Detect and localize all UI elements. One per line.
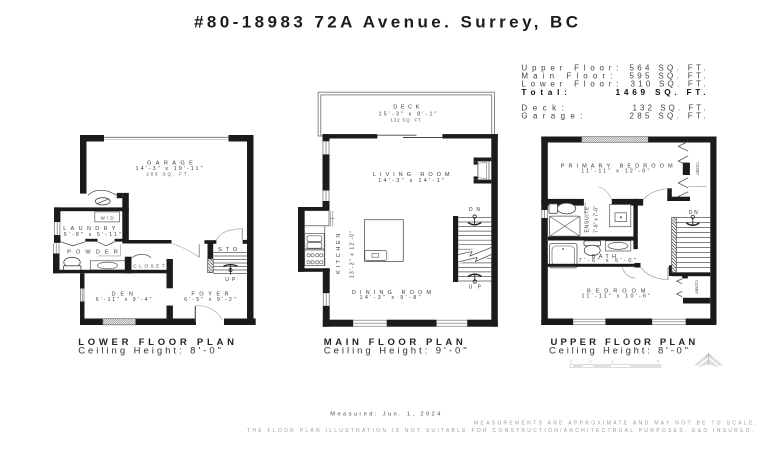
svg-text:13'-2" x 12'-0": 13'-2" x 12'-0" (350, 231, 356, 278)
svg-text:2: 2 (589, 359, 592, 364)
svg-text:11'-11" x 10'-6": 11'-11" x 10'-6" (582, 294, 651, 300)
svg-text:132 SQ. FT.: 132 SQ. FT. (390, 118, 422, 123)
svg-text:CLOSET: CLOSET (695, 280, 700, 295)
svg-text:MEASUREMENTS ARE APPROXIMATE A: MEASUREMENTS ARE APPROXIMATE AND MAY NOT… (474, 421, 756, 427)
svg-text:14'-3" x 14'-1": 14'-3" x 14'-1" (378, 178, 444, 184)
svg-text:4: 4 (611, 359, 614, 364)
svg-text:11'-11" x 12'-0": 11'-11" x 12'-0" (581, 169, 649, 175)
svg-text:CLOSET: CLOSET (695, 162, 700, 176)
svg-text:ENSUITE: ENSUITE (585, 206, 591, 233)
svg-text:W/D: W/D (101, 215, 115, 220)
svg-text:8: 8 (657, 359, 660, 364)
svg-text:DN: DN (689, 210, 698, 216)
svg-text:7'-6" x 7'-0": 7'-6" x 7'-0" (594, 206, 600, 233)
svg-text:0: 0 (570, 359, 573, 364)
svg-text:6'-5" x 9'-2": 6'-5" x 9'-2" (184, 297, 236, 303)
